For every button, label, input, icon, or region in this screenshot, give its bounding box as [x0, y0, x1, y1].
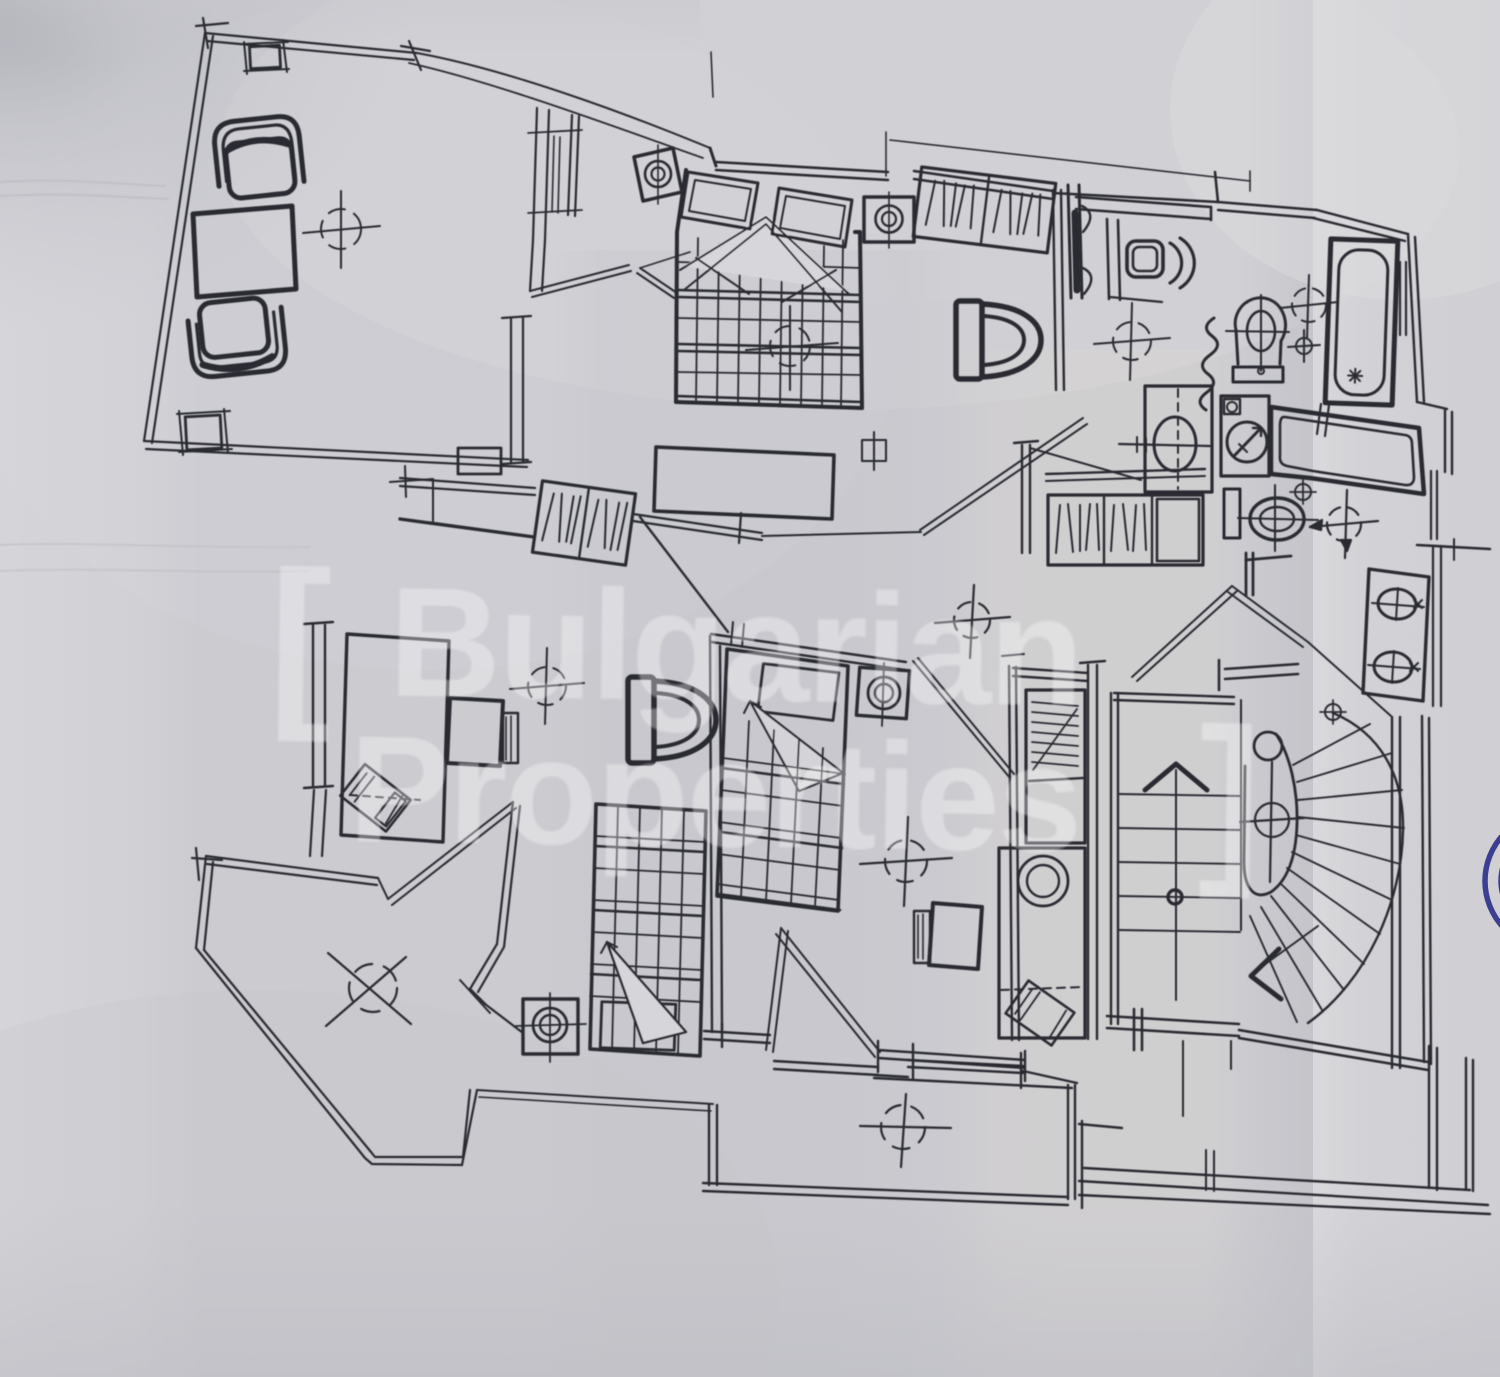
svg-text:[: [: [267, 532, 333, 743]
svg-text:Properties: Properties: [348, 704, 1082, 884]
svg-text:]: ]: [1197, 689, 1263, 900]
